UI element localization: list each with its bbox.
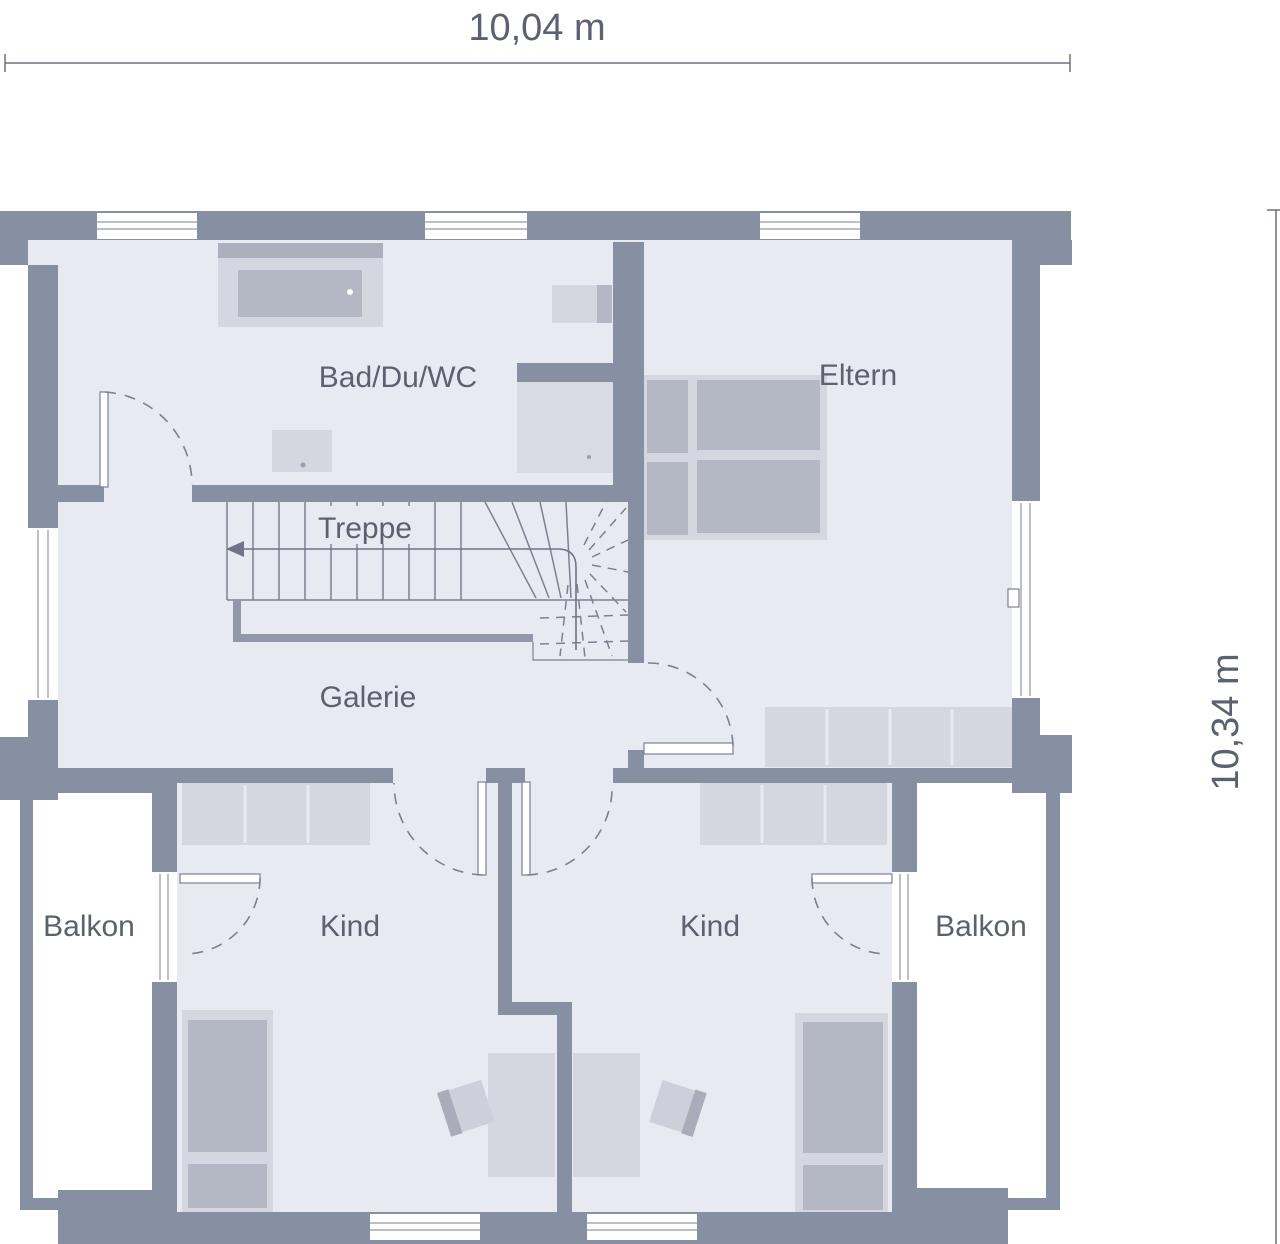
bath-label: Bad/Du/WC [319, 361, 477, 394]
toilet [552, 285, 612, 323]
stairs-label: Treppe [318, 512, 412, 545]
parents-bed [642, 375, 827, 540]
desk-right [573, 1053, 640, 1177]
balcony-right-rail [1046, 793, 1060, 1208]
bed-right [795, 1013, 888, 1212]
right-dimension-label: 10,34 m [1205, 653, 1247, 790]
wardrobe-right [700, 783, 887, 845]
balcony-door-right [892, 872, 917, 982]
balcony-left-rail [20, 793, 33, 1203]
bathtub [218, 243, 383, 327]
parents-label: Eltern [819, 359, 897, 392]
child-left-label: Kind [320, 910, 380, 943]
shower [517, 382, 613, 473]
window-top-3 [760, 213, 860, 239]
window-left [28, 528, 58, 700]
desk-left [488, 1053, 555, 1177]
gallery-label: Galerie [320, 681, 417, 714]
window-bottom-2 [587, 1214, 697, 1240]
window-top-2 [425, 213, 527, 239]
child-right-label: Kind [680, 910, 740, 943]
floor-plan-drawing: Bad/Du/WC Eltern Treppe Galerie Kind Kin… [0, 0, 1280, 1244]
window-top-1 [97, 213, 197, 239]
balcony-right-label: Balkon [935, 910, 1027, 943]
wardrobe-left [182, 783, 370, 845]
window-parents [1008, 501, 1040, 698]
balcony-left-floor [20, 793, 152, 1210]
balcony-door-left [152, 872, 177, 982]
floor-plan: Bad/Du/WC Eltern Treppe Galerie Kind Kin… [0, 0, 1280, 1244]
window-bottom-1 [370, 1214, 480, 1240]
washbasin [272, 430, 332, 472]
parents-sideboard [765, 707, 1012, 767]
top-dimension-label: 10,04 m [468, 7, 605, 49]
balcony-left-label: Balkon [43, 910, 135, 943]
bed-left [182, 1010, 273, 1212]
balcony-right-floor [917, 793, 1060, 1210]
